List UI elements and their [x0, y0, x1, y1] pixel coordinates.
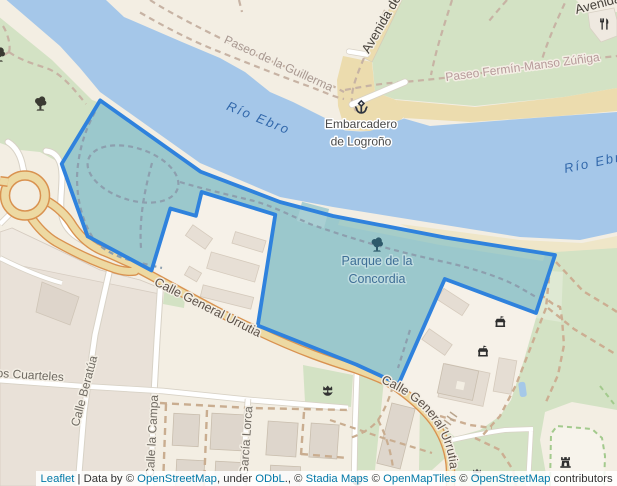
svg-text:Embarcadero: Embarcadero	[325, 117, 397, 131]
svg-text:Parque de la: Parque de la	[342, 254, 413, 268]
svg-text:Concordia: Concordia	[349, 272, 406, 286]
svg-text:de Logroño: de Logroño	[331, 135, 392, 149]
svg-text:Leaflet | Data by © OpenStreet: Leaflet | Data by © OpenStreetMap, under…	[41, 473, 613, 485]
